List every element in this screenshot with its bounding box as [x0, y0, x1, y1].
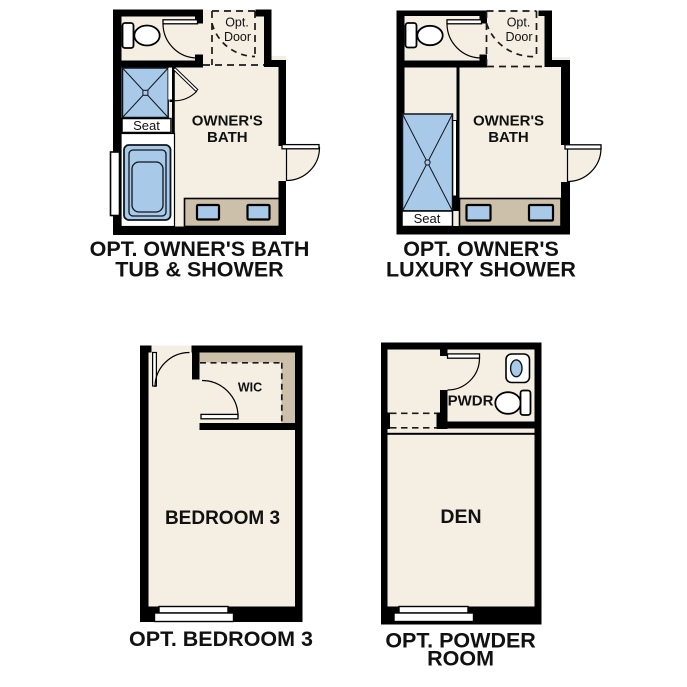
svg-text:OWNER'S: OWNER'S [192, 112, 263, 129]
svg-text:BATH: BATH [488, 129, 529, 146]
svg-text:OWNER'S: OWNER'S [473, 112, 544, 129]
svg-text:Seat: Seat [133, 118, 160, 133]
svg-text:BATH: BATH [207, 129, 248, 146]
svg-text:LUXURY SHOWER: LUXURY SHOWER [386, 258, 576, 282]
svg-text:WIC: WIC [238, 381, 262, 395]
svg-text:PWDR: PWDR [448, 393, 494, 410]
svg-text:BEDROOM 3: BEDROOM 3 [165, 508, 280, 529]
svg-text:Opt.: Opt. [225, 16, 249, 30]
svg-text:ROOM: ROOM [427, 647, 494, 671]
svg-text:OPT. BEDROOM 3: OPT. BEDROOM 3 [129, 627, 313, 651]
svg-text:Seat: Seat [414, 211, 441, 226]
svg-text:TUB & SHOWER: TUB & SHOWER [115, 258, 284, 282]
svg-text:DEN: DEN [440, 506, 481, 528]
svg-text:Door: Door [224, 30, 251, 44]
svg-text:Door: Door [505, 30, 532, 44]
svg-text:Opt.: Opt. [507, 16, 531, 30]
